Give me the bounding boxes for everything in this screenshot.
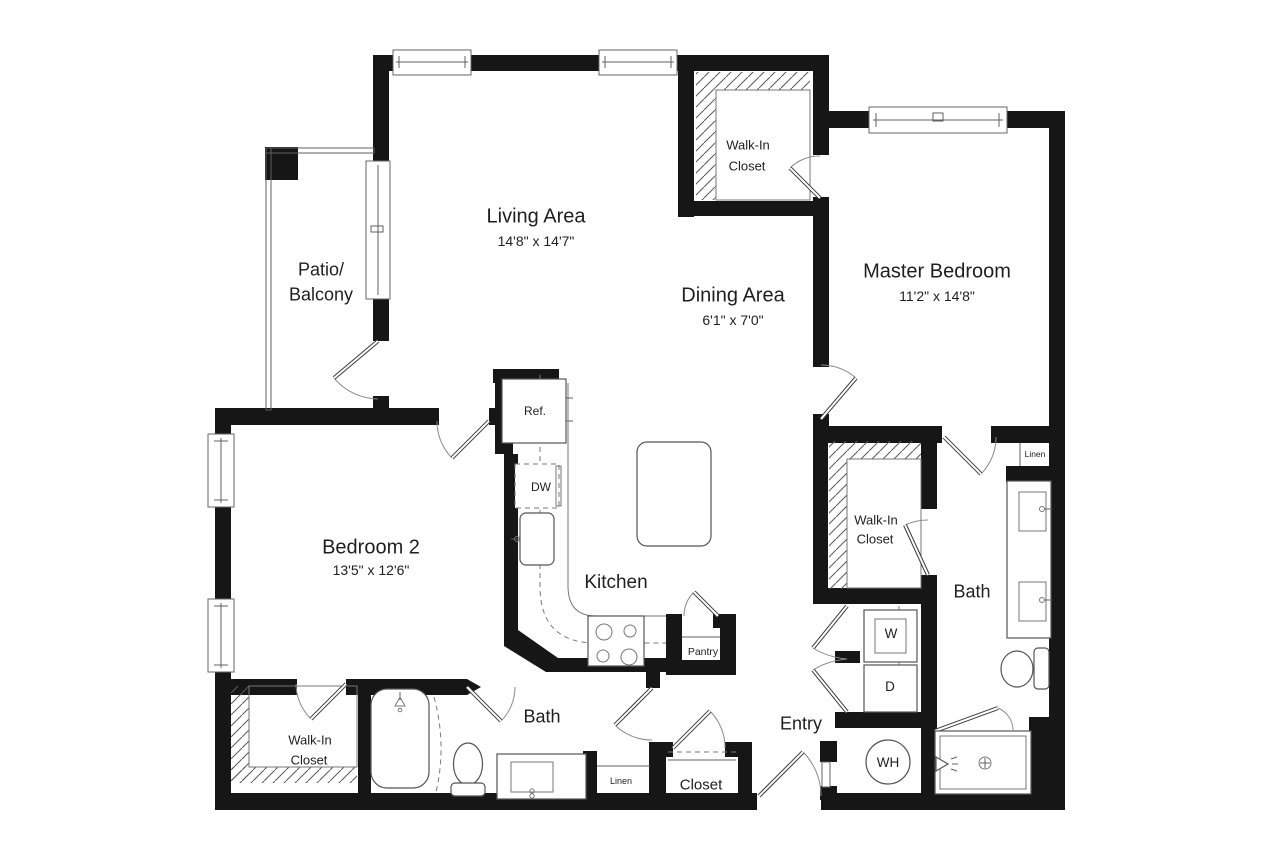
door-entry <box>759 752 821 796</box>
toilet-master-bath <box>1001 648 1049 689</box>
master-bedroom-dims: 11'2" x 14'8" <box>899 288 975 304</box>
walkin-master-label-line2: Closet <box>857 533 894 548</box>
door-pantry <box>684 592 718 616</box>
dryer-label: D <box>885 679 895 695</box>
door-water-heater-closet <box>822 762 830 787</box>
door-master-bedroom <box>821 365 856 419</box>
living-area-dims: 14'8" x 14'7" <box>498 233 575 249</box>
door-bedroom2 <box>437 421 489 458</box>
double-vanity <box>1007 481 1052 638</box>
door-bedroom2-closet <box>296 684 346 719</box>
walkin-top-label-line1: Walk-In <box>726 139 770 154</box>
master-bath-label: Bath <box>953 582 990 603</box>
kitchen-label: Kitchen <box>584 572 647 594</box>
floor-plan-drawing <box>0 0 1280 861</box>
walkin-top-label-line2: Closet <box>729 160 766 175</box>
entry-label: Entry <box>780 714 822 735</box>
window <box>869 107 1007 133</box>
living-area-label: Living Area <box>487 206 586 229</box>
window <box>393 50 471 75</box>
dining-area-dims: 6'1" x 7'0" <box>702 312 763 328</box>
linen-bath-label: Linen <box>610 776 632 786</box>
bedroom2-dims: 13'5" x 12'6" <box>333 562 410 578</box>
window <box>599 50 677 75</box>
stove <box>588 616 644 666</box>
window <box>208 599 234 672</box>
door-master-bath <box>944 437 996 474</box>
washer-label: W <box>885 626 898 642</box>
dining-area-label: Dining Area <box>681 285 784 308</box>
door-patio <box>334 341 378 399</box>
hall-bath-label: Bath <box>523 707 560 728</box>
door-top-walkin <box>790 156 820 198</box>
pantry-label: Pantry <box>688 646 718 658</box>
refrigerator-label: Ref. <box>524 405 546 419</box>
walkin-master-label-line1: Walk-In <box>854 514 898 529</box>
door-bedroom2-bath <box>467 687 515 721</box>
patio-label-line1: Patio/ <box>298 260 344 281</box>
window <box>208 434 234 507</box>
bedroom2-label: Bedroom 2 <box>322 537 420 560</box>
floor-plan-page: Living Area 14'8" x 14'7" Dining Area 6'… <box>0 0 1280 861</box>
toilet-bath2 <box>451 743 485 796</box>
patio-label-line2: Balcony <box>289 285 353 306</box>
door-entry-closet <box>673 711 725 748</box>
walls-layer <box>215 55 1065 810</box>
patio-column <box>265 147 298 180</box>
door-shower <box>935 708 1013 731</box>
master-bedroom-label: Master Bedroom <box>863 261 1011 284</box>
bathtub <box>371 689 429 788</box>
entry-closet-label: Closet <box>680 776 723 793</box>
linen-master-label: Linen <box>1025 450 1046 460</box>
vanity-bath2 <box>497 754 586 799</box>
door-master-walkin <box>905 520 928 575</box>
kitchen-island <box>637 442 711 546</box>
shower-curtain <box>434 697 441 792</box>
shower <box>935 731 1031 794</box>
walkin-bedroom2-label-line2: Closet <box>291 754 328 769</box>
patio-sliding-door <box>366 161 390 299</box>
water-heater-label: WH <box>877 755 900 771</box>
walkin-bedroom2-label-line1: Walk-In <box>288 734 332 749</box>
door-hall-bath <box>615 688 652 740</box>
dishwasher-label: DW <box>531 481 551 495</box>
